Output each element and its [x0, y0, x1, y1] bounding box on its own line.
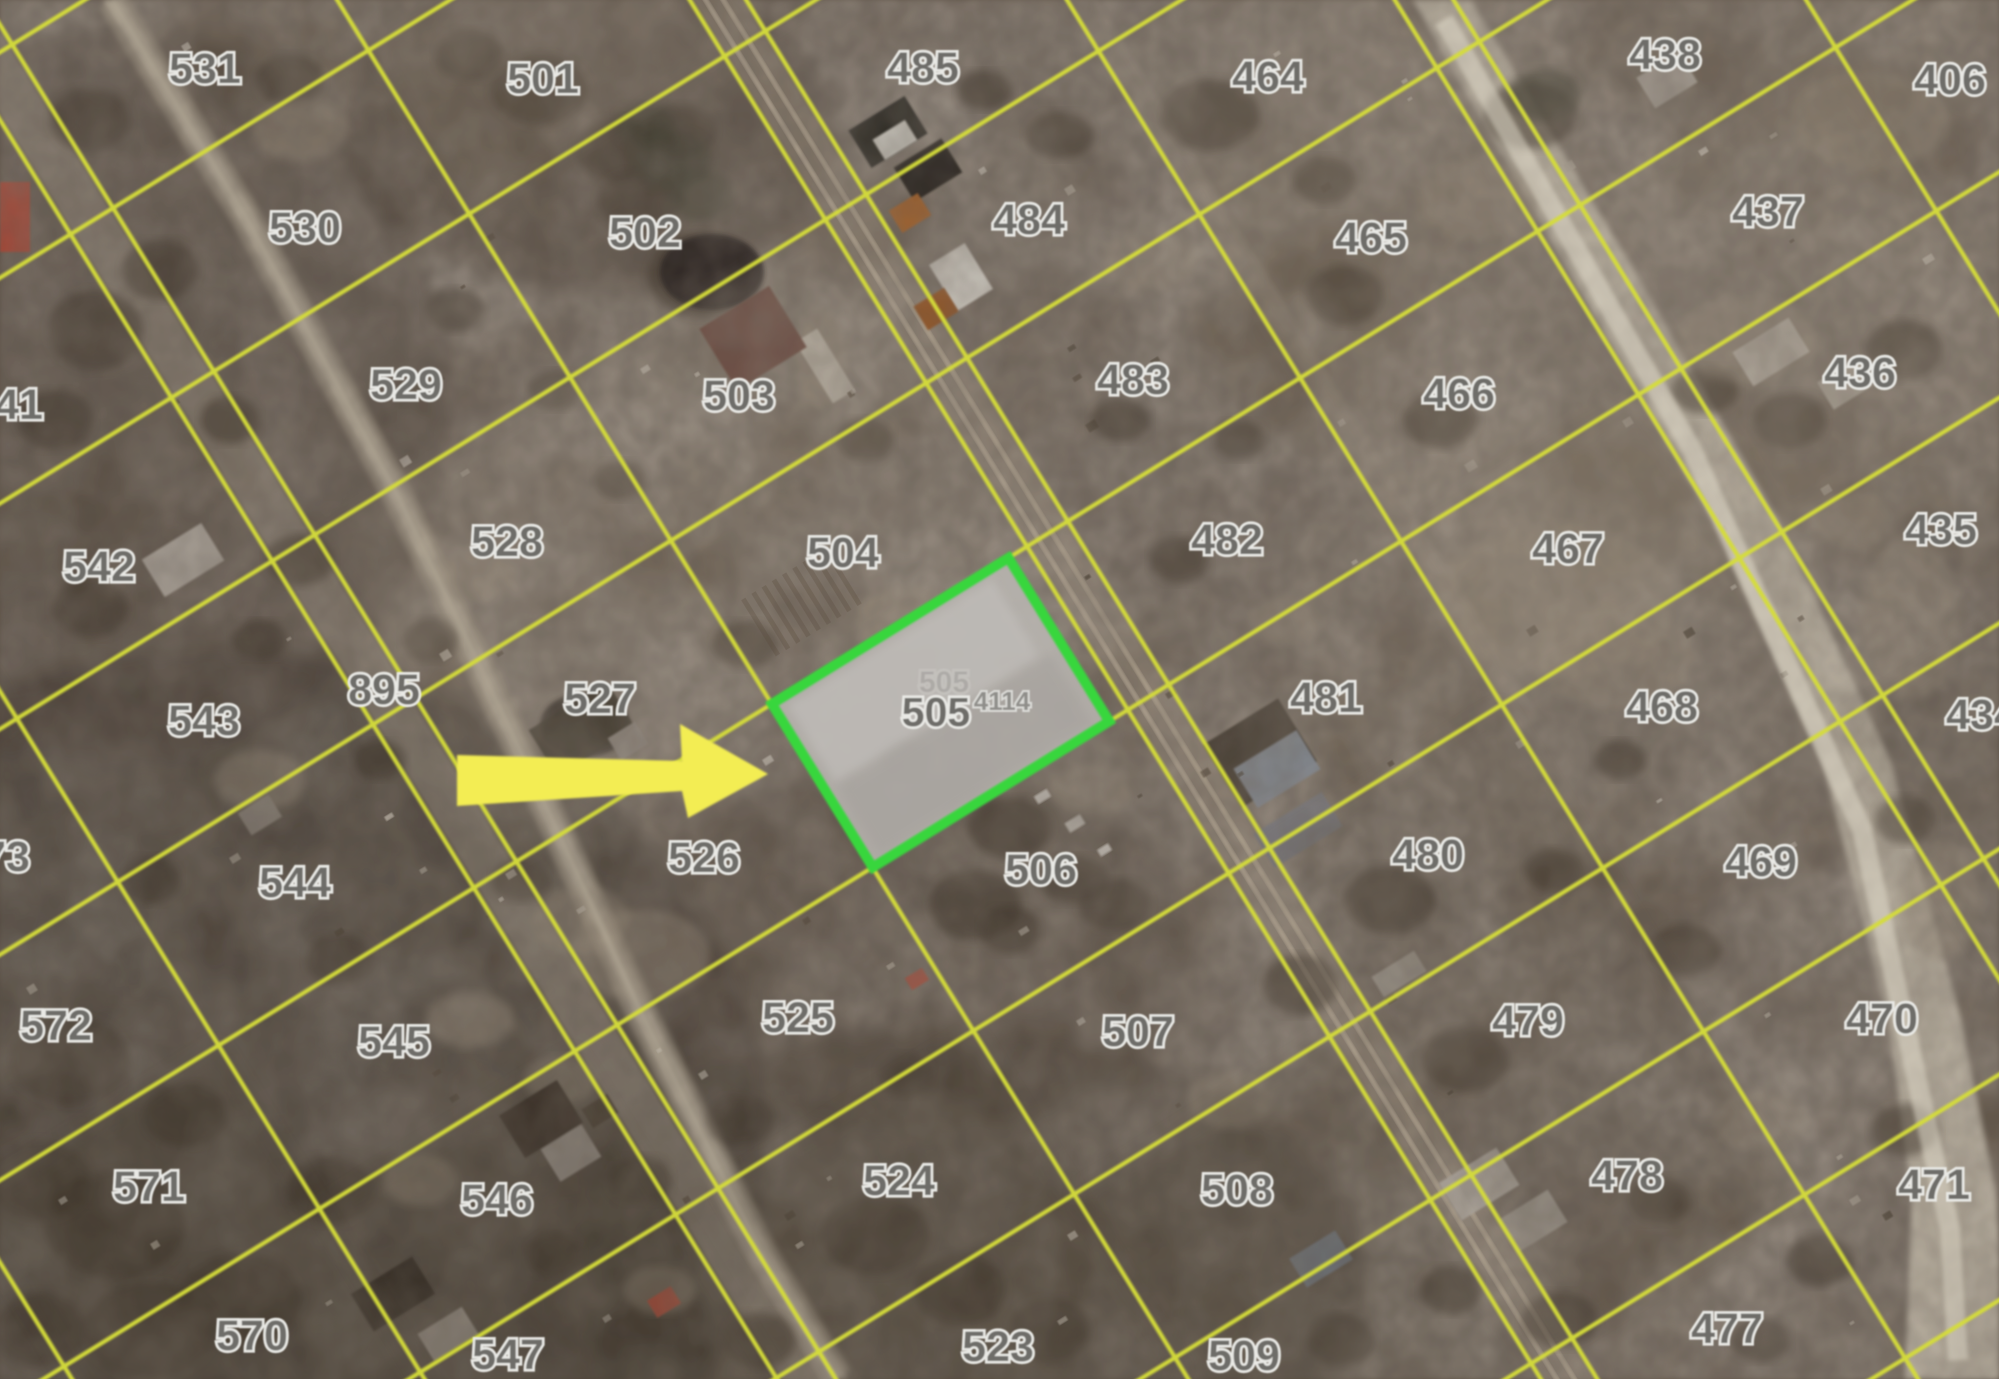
svg-text:467: 467: [1532, 525, 1604, 573]
svg-text:504: 504: [807, 529, 879, 577]
svg-text:482: 482: [1191, 516, 1263, 564]
svg-text:523: 523: [962, 1323, 1034, 1371]
svg-text:547: 547: [472, 1331, 544, 1379]
svg-text:529: 529: [370, 361, 442, 409]
svg-text:471: 471: [1898, 1161, 1970, 1209]
svg-text:406: 406: [1914, 56, 1986, 104]
svg-text:508: 508: [1201, 1166, 1273, 1214]
svg-text:485: 485: [887, 44, 959, 92]
svg-text:437: 437: [1732, 188, 1804, 236]
svg-text:438: 438: [1629, 31, 1701, 79]
svg-text:528: 528: [471, 518, 543, 566]
svg-text:478: 478: [1591, 1152, 1663, 1200]
svg-text:481: 481: [1290, 674, 1362, 722]
svg-text:570: 570: [216, 1312, 288, 1360]
svg-text:526: 526: [668, 834, 740, 882]
svg-text:542: 542: [63, 543, 135, 591]
svg-text:502: 502: [609, 209, 681, 257]
svg-text:524: 524: [863, 1157, 935, 1205]
svg-text:465: 465: [1335, 214, 1407, 262]
svg-text:470: 470: [1846, 995, 1918, 1043]
svg-text:571: 571: [113, 1163, 185, 1211]
svg-text:464: 464: [1232, 53, 1304, 101]
svg-text:531: 531: [169, 45, 241, 93]
svg-text:477: 477: [1691, 1305, 1763, 1353]
svg-text:509: 509: [1208, 1332, 1280, 1379]
svg-text:527: 527: [564, 675, 636, 723]
svg-text:434: 434: [1946, 691, 1999, 739]
svg-text:466: 466: [1423, 370, 1495, 418]
svg-text:469: 469: [1725, 838, 1797, 886]
svg-text:530: 530: [269, 204, 341, 252]
svg-text:436: 436: [1824, 349, 1896, 397]
svg-text:572: 572: [20, 1002, 92, 1050]
svg-text:543: 543: [168, 697, 240, 745]
svg-text:507: 507: [1102, 1008, 1174, 1056]
svg-text:541: 541: [0, 381, 43, 429]
svg-text:544: 544: [259, 859, 331, 907]
svg-text:484: 484: [993, 196, 1065, 244]
svg-text:895: 895: [348, 666, 420, 714]
svg-text:525: 525: [762, 994, 834, 1042]
svg-text:546: 546: [461, 1176, 533, 1224]
svg-text:4114: 4114: [974, 686, 1031, 716]
svg-text:468: 468: [1626, 683, 1698, 731]
svg-text:483: 483: [1097, 356, 1169, 404]
svg-text:479: 479: [1492, 997, 1564, 1045]
svg-text:480: 480: [1392, 831, 1464, 879]
svg-text:545: 545: [358, 1018, 430, 1066]
svg-text:505: 505: [902, 689, 970, 735]
svg-text:435: 435: [1905, 506, 1977, 554]
svg-text:503: 503: [703, 372, 775, 420]
svg-text:501: 501: [507, 55, 579, 103]
svg-text:506: 506: [1005, 846, 1077, 894]
svg-text:573: 573: [0, 833, 30, 881]
